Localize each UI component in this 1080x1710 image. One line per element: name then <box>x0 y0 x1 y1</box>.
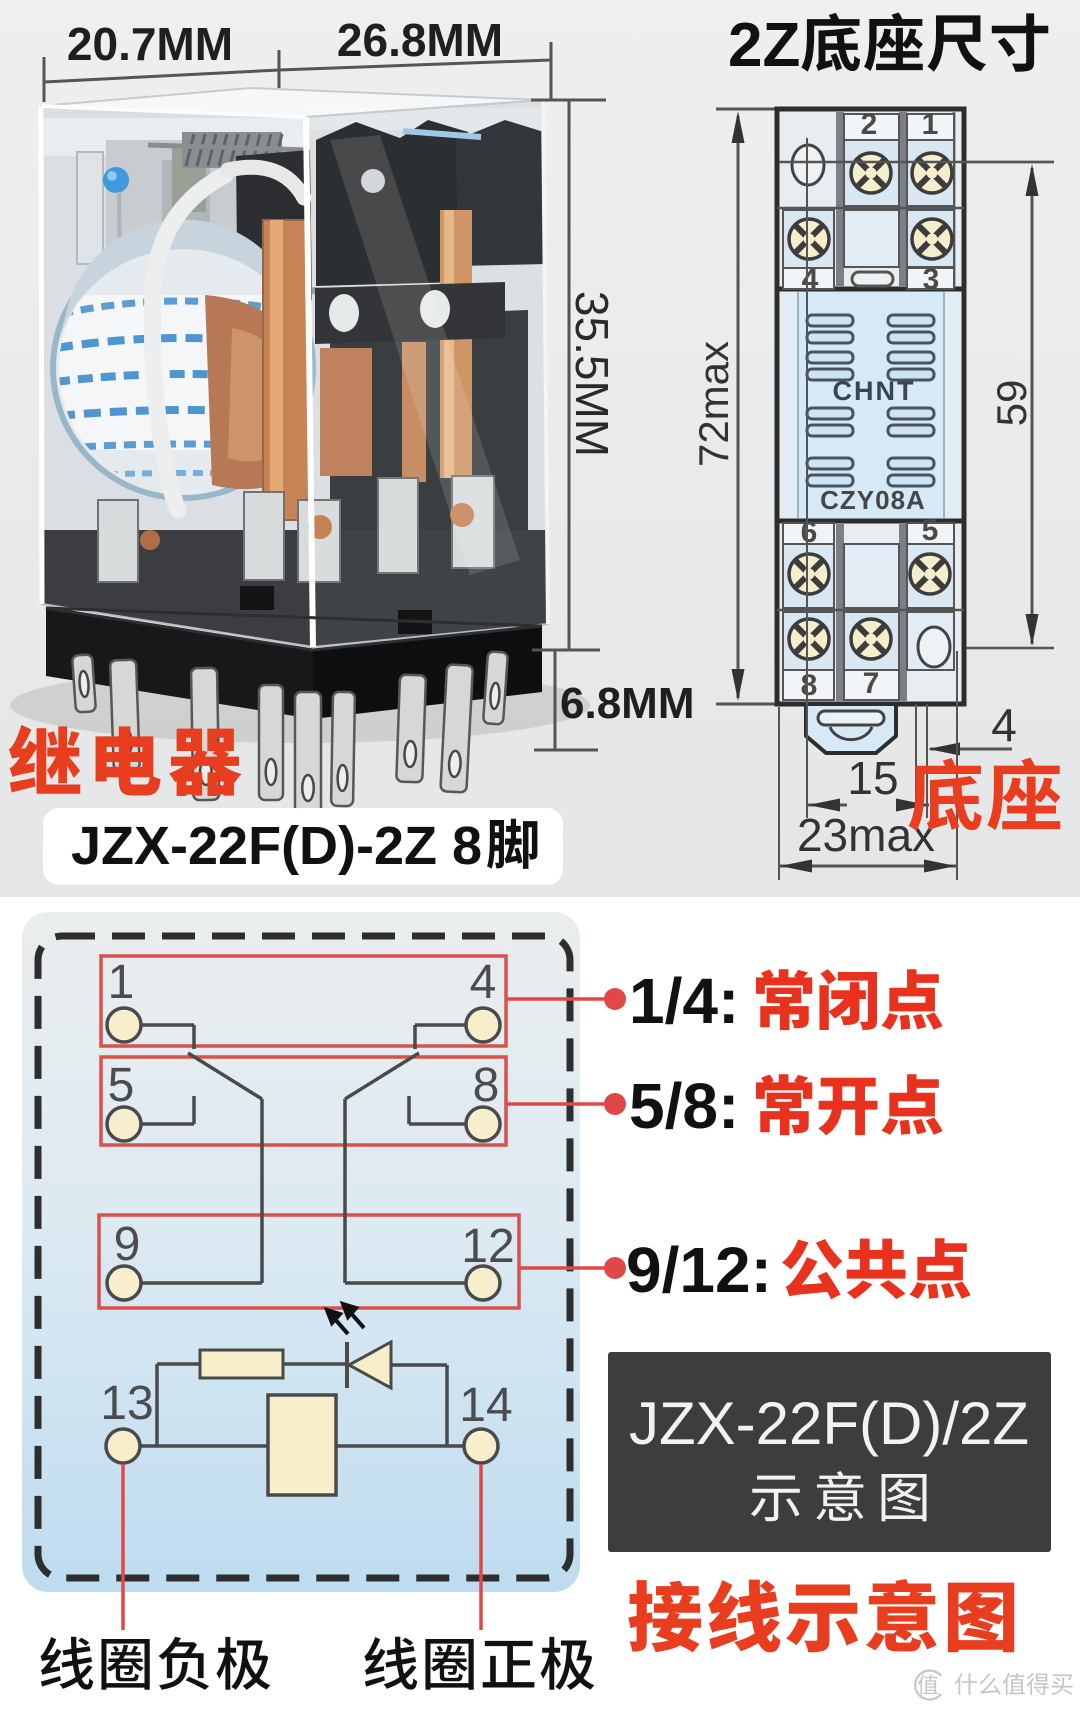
svg-text:59: 59 <box>988 380 1035 427</box>
svg-text:3: 3 <box>923 263 940 296</box>
svg-text:26.8MM: 26.8MM <box>337 14 503 66</box>
svg-text:8: 8 <box>473 1059 500 1112</box>
svg-text:JZX-22F(D)/2Z: JZX-22F(D)/2Z <box>629 1390 1029 1457</box>
svg-text:72max: 72max <box>690 341 737 467</box>
svg-text:9/12:: 9/12: <box>626 1234 772 1306</box>
svg-text:13: 13 <box>100 1377 153 1430</box>
svg-text:2Z: 2Z <box>728 11 800 80</box>
svg-text:15: 15 <box>847 752 898 804</box>
svg-text:1: 1 <box>108 956 135 1009</box>
svg-text:4: 4 <box>470 956 497 1009</box>
svg-text:1/4:: 1/4: <box>629 965 739 1037</box>
svg-text:6: 6 <box>801 516 818 549</box>
svg-text:20.7MM: 20.7MM <box>67 18 233 70</box>
svg-text:6.8MM: 6.8MM <box>560 679 694 728</box>
svg-text:12: 12 <box>461 1220 514 1273</box>
svg-text:7: 7 <box>863 667 880 700</box>
svg-text:JZX-22F(D)-2Z 8: JZX-22F(D)-2Z 8 <box>71 816 482 876</box>
svg-text:14: 14 <box>459 1379 512 1432</box>
svg-text:1: 1 <box>922 108 939 141</box>
svg-text:4: 4 <box>802 263 819 296</box>
svg-text:9: 9 <box>114 1218 141 1271</box>
svg-text:5: 5 <box>108 1059 135 1112</box>
svg-text:5: 5 <box>922 514 939 547</box>
svg-text:CHNT: CHNT <box>833 376 916 406</box>
svg-text:35.5MM: 35.5MM <box>566 291 618 457</box>
svg-text:CZY08A: CZY08A <box>820 485 926 515</box>
svg-text:5/8:: 5/8: <box>629 1070 739 1142</box>
svg-text:4: 4 <box>991 699 1017 751</box>
svg-text:8: 8 <box>801 669 818 702</box>
svg-text:2: 2 <box>861 108 878 141</box>
